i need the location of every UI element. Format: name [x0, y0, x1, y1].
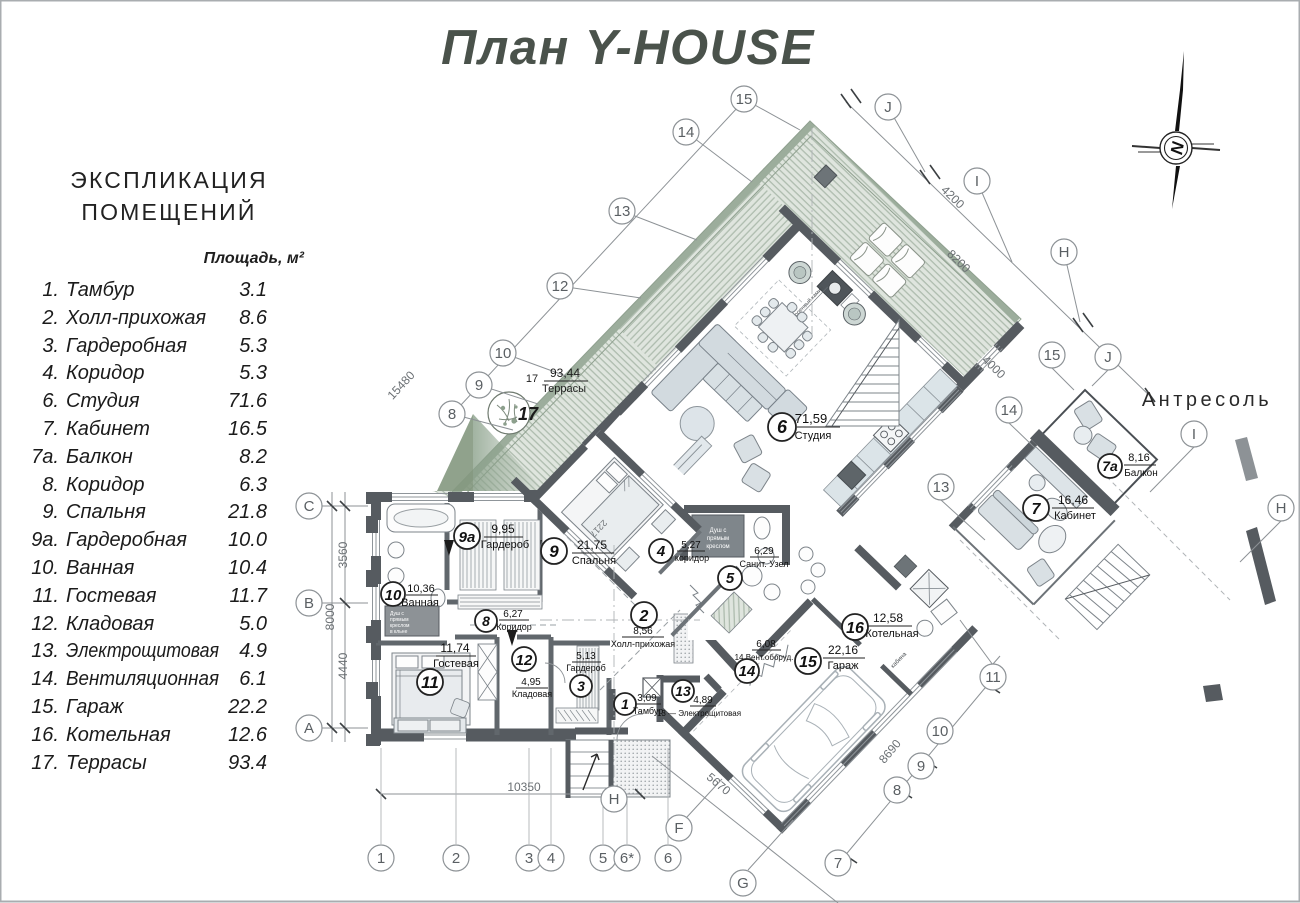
- svg-text:F: F: [674, 820, 683, 837]
- svg-text:креслом: креслом: [706, 544, 729, 550]
- svg-text:17: 17: [526, 373, 538, 385]
- svg-text:Вентиляционная: Вентиляционная: [66, 668, 219, 690]
- svg-text:14: 14: [678, 124, 695, 141]
- svg-text:4.9: 4.9: [239, 640, 267, 662]
- svg-text:7: 7: [1032, 501, 1042, 518]
- svg-text:Коридор: Коридор: [66, 362, 144, 384]
- svg-text:Ванная: Ванная: [66, 557, 135, 579]
- svg-text:16,46: 16,46: [1058, 493, 1088, 507]
- svg-text:11: 11: [985, 669, 1001, 686]
- svg-text:11.7: 11.7: [230, 585, 268, 607]
- svg-text:16.: 16.: [31, 724, 59, 746]
- svg-text:7а.: 7а.: [31, 446, 59, 468]
- svg-text:15: 15: [736, 91, 753, 108]
- svg-text:17.: 17.: [31, 752, 59, 774]
- svg-text:14.: 14.: [31, 668, 59, 690]
- svg-text:6,29: 6,29: [754, 546, 774, 557]
- svg-text:13: 13: [614, 203, 631, 220]
- svg-text:13.: 13.: [31, 640, 59, 662]
- svg-text:B: B: [304, 595, 314, 612]
- svg-text:5,27: 5,27: [681, 540, 701, 551]
- svg-text:9а.: 9а.: [31, 529, 59, 551]
- svg-text:коридор: коридор: [675, 553, 709, 563]
- svg-text:A: A: [304, 720, 314, 737]
- svg-text:Кабинет: Кабинет: [1054, 510, 1096, 522]
- svg-text:17: 17: [518, 404, 539, 424]
- svg-text:5,13: 5,13: [576, 651, 596, 662]
- svg-text:71,59: 71,59: [795, 411, 828, 426]
- svg-text:10.0: 10.0: [228, 529, 267, 551]
- svg-text:6.3: 6.3: [239, 474, 267, 496]
- svg-text:8,56: 8,56: [633, 626, 653, 637]
- svg-text:22,16: 22,16: [828, 643, 858, 657]
- svg-text:15: 15: [799, 654, 818, 671]
- svg-text:4.: 4.: [42, 362, 59, 384]
- svg-text:9: 9: [549, 542, 559, 561]
- svg-text:5: 5: [599, 850, 607, 867]
- svg-text:3,09: 3,09: [637, 693, 657, 704]
- svg-text:10350: 10350: [507, 780, 541, 794]
- svg-text:10: 10: [495, 345, 512, 362]
- svg-text:8: 8: [893, 782, 901, 799]
- svg-text:5.3: 5.3: [239, 335, 267, 357]
- svg-text:4,89: 4,89: [693, 695, 713, 706]
- svg-text:10: 10: [932, 723, 949, 740]
- svg-text:16: 16: [846, 620, 864, 637]
- svg-text:22.2: 22.2: [227, 696, 267, 718]
- svg-text:Коридор: Коридор: [66, 474, 144, 496]
- svg-text:Балкон: Балкон: [1124, 468, 1158, 479]
- svg-text:13: 13: [933, 479, 950, 496]
- svg-text:1: 1: [377, 850, 385, 867]
- svg-text:Санит. Узел: Санит. Узел: [740, 559, 789, 569]
- svg-text:Террасы: Террасы: [66, 752, 147, 774]
- svg-text:93,44: 93,44: [550, 366, 580, 380]
- svg-text:Тамбур: Тамбур: [66, 279, 135, 301]
- svg-text:9.: 9.: [42, 501, 59, 523]
- svg-text:13: 13: [675, 683, 691, 699]
- svg-text:Спальня: Спальня: [572, 555, 616, 567]
- svg-text:10.4: 10.4: [228, 557, 267, 579]
- svg-text:C: C: [304, 498, 315, 515]
- svg-text:Коридор: Коридор: [496, 622, 532, 632]
- svg-text:H: H: [1059, 244, 1070, 261]
- svg-text:План Y-HOUSE: План Y-HOUSE: [441, 21, 815, 75]
- svg-text:5.0: 5.0: [239, 613, 267, 635]
- svg-text:Гостевая: Гостевая: [433, 658, 479, 670]
- svg-text:Кладовая: Кладовая: [512, 689, 552, 699]
- svg-text:6*: 6*: [620, 850, 634, 867]
- svg-text:13 — Электрощитовая: 13 — Электрощитовая: [657, 709, 741, 718]
- svg-text:3560: 3560: [336, 541, 350, 568]
- svg-text:9: 9: [917, 758, 925, 775]
- svg-text:3: 3: [577, 678, 585, 694]
- svg-text:15.: 15.: [31, 696, 59, 718]
- svg-text:2: 2: [452, 850, 460, 867]
- svg-text:4440: 4440: [336, 652, 350, 679]
- svg-text:12: 12: [552, 278, 569, 295]
- svg-text:ПОМЕЩЕНИЙ: ПОМЕЩЕНИЙ: [81, 198, 256, 225]
- svg-text:Гардероб: Гардероб: [566, 663, 606, 673]
- svg-text:5.3: 5.3: [239, 362, 267, 384]
- svg-text:H: H: [1276, 500, 1287, 517]
- svg-text:16.5: 16.5: [228, 418, 268, 440]
- svg-text:Гараж: Гараж: [66, 696, 125, 718]
- svg-text:8.: 8.: [42, 474, 59, 496]
- svg-text:8.2: 8.2: [239, 446, 267, 468]
- svg-text:8,16: 8,16: [1128, 452, 1149, 464]
- svg-text:Антресоль: Антресоль: [1142, 389, 1272, 411]
- svg-text:J: J: [1104, 349, 1112, 366]
- svg-text:9а: 9а: [459, 529, 476, 546]
- svg-text:3: 3: [525, 850, 533, 867]
- svg-text:14: 14: [739, 663, 756, 680]
- svg-text:2: 2: [639, 608, 649, 625]
- svg-text:7.: 7.: [42, 418, 59, 440]
- svg-text:ЭКСПЛИКАЦИЯ: ЭКСПЛИКАЦИЯ: [70, 167, 268, 193]
- svg-text:4: 4: [656, 543, 666, 560]
- svg-text:Спальня: Спальня: [66, 501, 146, 523]
- svg-text:9,95: 9,95: [491, 522, 515, 536]
- svg-text:Котельная: Котельная: [66, 724, 171, 746]
- svg-text:G: G: [737, 875, 749, 892]
- svg-text:21,75: 21,75: [577, 538, 607, 552]
- svg-text:7: 7: [834, 855, 842, 872]
- svg-text:10: 10: [385, 587, 402, 604]
- svg-text:8000: 8000: [323, 603, 337, 630]
- svg-text:в кльне: в кльне: [390, 629, 408, 635]
- svg-text:I: I: [1192, 426, 1196, 443]
- svg-text:Ванная: Ванная: [401, 597, 439, 609]
- svg-text:8.6: 8.6: [239, 307, 268, 329]
- svg-text:6,27: 6,27: [503, 609, 523, 620]
- svg-text:71.6: 71.6: [228, 390, 268, 412]
- svg-text:Площадь, м²: Площадь, м²: [204, 250, 305, 267]
- svg-text:Душ с: Душ с: [710, 528, 727, 534]
- svg-text:1.: 1.: [42, 279, 59, 301]
- svg-text:Электрощитовая: Электрощитовая: [66, 640, 219, 662]
- svg-text:4,95: 4,95: [521, 677, 541, 688]
- svg-text:Балкон: Балкон: [66, 446, 133, 468]
- svg-text:6.: 6.: [42, 390, 59, 412]
- svg-text:прямым: прямым: [707, 536, 729, 542]
- svg-text:Кладовая: Кладовая: [66, 613, 154, 635]
- svg-text:10.: 10.: [31, 557, 59, 579]
- svg-text:3.: 3.: [42, 335, 59, 357]
- svg-text:12.: 12.: [31, 613, 59, 635]
- svg-text:6.1: 6.1: [239, 668, 267, 690]
- svg-text:1: 1: [621, 696, 629, 712]
- svg-text:Гардеробная: Гардеробная: [66, 335, 187, 357]
- svg-text:I: I: [975, 173, 979, 190]
- svg-text:Студия: Студия: [66, 390, 140, 412]
- svg-text:Гостевая: Гостевая: [66, 585, 157, 607]
- svg-text:12,58: 12,58: [873, 611, 903, 625]
- svg-text:12.6: 12.6: [228, 724, 268, 746]
- svg-text:14: 14: [1001, 402, 1018, 419]
- svg-text:11.: 11.: [33, 585, 59, 607]
- svg-text:Гардеробная: Гардеробная: [66, 529, 187, 551]
- svg-text:H: H: [609, 791, 620, 808]
- svg-text:Студия: Студия: [795, 430, 832, 442]
- svg-text:11: 11: [421, 673, 439, 692]
- svg-text:4: 4: [547, 850, 555, 867]
- svg-text:Гараж: Гараж: [827, 660, 859, 672]
- svg-text:2.: 2.: [41, 307, 59, 329]
- svg-text:Кабинет: Кабинет: [66, 418, 150, 440]
- svg-text:9: 9: [475, 377, 483, 394]
- svg-text:10,36: 10,36: [407, 583, 435, 595]
- svg-text:J: J: [884, 99, 892, 116]
- svg-text:8: 8: [448, 406, 456, 423]
- svg-text:11,74: 11,74: [440, 641, 469, 655]
- svg-text:93.4: 93.4: [228, 752, 267, 774]
- svg-text:Котельная: Котельная: [865, 628, 918, 640]
- svg-text:7а: 7а: [1102, 458, 1118, 474]
- svg-text:Гардероб: Гардероб: [481, 539, 529, 551]
- svg-text:6: 6: [777, 417, 788, 437]
- svg-text:Холл-прихожая: Холл-прихожая: [65, 307, 206, 329]
- svg-text:12: 12: [516, 652, 533, 669]
- svg-text:8: 8: [482, 613, 490, 629]
- svg-text:3.1: 3.1: [239, 279, 267, 301]
- svg-text:6: 6: [664, 850, 672, 867]
- svg-text:21.8: 21.8: [227, 501, 267, 523]
- svg-text:5: 5: [726, 570, 735, 587]
- svg-text:6,08: 6,08: [756, 639, 776, 650]
- svg-text:15: 15: [1044, 347, 1061, 364]
- svg-text:Холл-прихожая: Холл-прихожая: [611, 639, 675, 649]
- svg-text:Террасы: Террасы: [542, 383, 586, 395]
